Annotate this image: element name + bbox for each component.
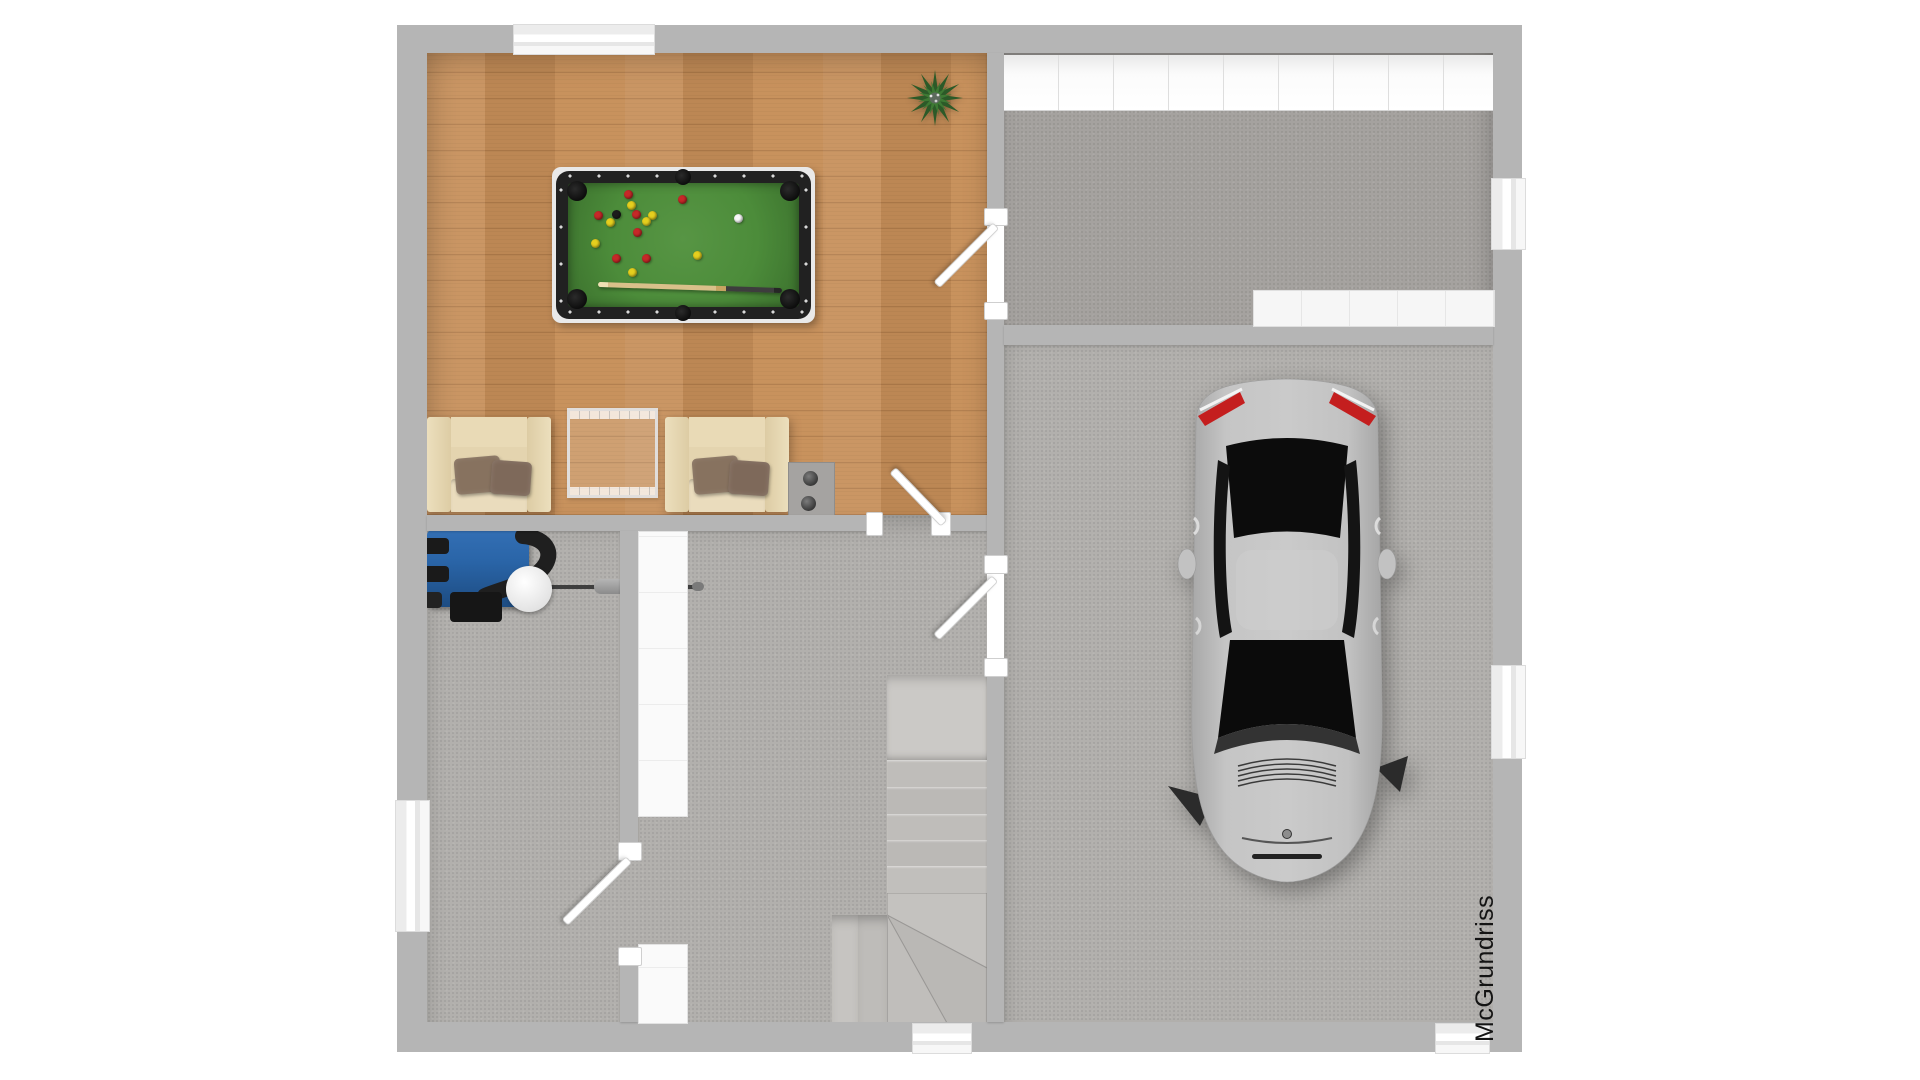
chimney-flue <box>803 471 818 486</box>
car-front-intake <box>1252 854 1322 859</box>
billiard-ball-yellow <box>606 218 615 227</box>
pool-pocket <box>567 181 587 201</box>
wall-vertical-lower <box>987 675 1004 1022</box>
billiard-ball-red <box>612 254 621 263</box>
armchair-arm <box>427 417 451 512</box>
potted-plant <box>905 68 965 128</box>
armchair-arm <box>665 417 689 512</box>
pillow <box>490 460 532 497</box>
stair-tread <box>887 787 987 815</box>
stair-tread <box>887 760 987 788</box>
window-bottom-stair <box>912 1023 972 1054</box>
car-emblem <box>1283 830 1292 839</box>
armchair-back <box>451 417 527 451</box>
car-mirror-left <box>1178 549 1196 579</box>
car-windshield <box>1218 640 1356 738</box>
billiard-ball-white <box>734 214 743 223</box>
chimney-block <box>788 462 835 518</box>
armchair-right <box>665 417 789 512</box>
pool-pocket <box>675 305 691 321</box>
glass-table-bar <box>570 411 655 419</box>
stair-tread <box>887 840 987 867</box>
workbench <box>1253 290 1495 327</box>
armchair-left <box>427 417 551 512</box>
pool-pocket <box>567 289 587 309</box>
wall-boiler-room-lower <box>620 964 638 1022</box>
floor-plan: McGrundriss <box>0 0 1920 1080</box>
door-jamb <box>984 208 1008 226</box>
wall-vertical-upper <box>987 53 1004 210</box>
wall-workshop-bottom <box>1004 325 1493 345</box>
staircase-upper-landing <box>887 675 987 760</box>
chimney-flue <box>801 496 816 511</box>
window-left-wall <box>395 800 430 932</box>
billiard-ball-yellow <box>591 239 600 248</box>
glass-table-bar <box>570 487 655 495</box>
stair-lower-step <box>858 915 888 1022</box>
billiard-ball-red <box>632 210 641 219</box>
billiard-ball-red <box>624 190 633 199</box>
stair-winders <box>887 893 987 1023</box>
window-right-upper <box>1491 178 1526 250</box>
stair-tread <box>887 866 987 894</box>
wall-closet-panel <box>638 531 688 817</box>
door-jamb <box>984 658 1008 677</box>
armchair-back <box>689 417 765 451</box>
billiard-ball-red <box>633 228 642 237</box>
pool-pocket <box>780 289 800 309</box>
stair-lower-step <box>832 915 859 1022</box>
garage-door <box>1004 55 1493 111</box>
pipe-tip <box>692 582 704 591</box>
billiard-ball-black <box>612 210 621 219</box>
car-door-wedge-right <box>1376 756 1408 792</box>
car <box>1160 368 1414 893</box>
car-rear-window <box>1226 438 1348 538</box>
door-jamb <box>866 512 883 536</box>
billiard-ball-red <box>594 211 603 220</box>
billiard-ball-yellow <box>642 217 651 226</box>
window-right-lower <box>1491 665 1526 759</box>
boiler-burner <box>450 592 502 622</box>
door-jamb <box>618 842 642 861</box>
wall-games-room-bottom <box>427 515 867 531</box>
door-jamb <box>984 555 1008 574</box>
pool-pocket <box>675 169 691 185</box>
wall-closet-panel <box>638 944 688 1024</box>
billiard-ball-yellow <box>627 201 636 210</box>
billiard-ball-red <box>678 195 687 204</box>
expansion-tank <box>506 566 552 612</box>
car-roof <box>1236 550 1338 630</box>
pool-pocket <box>780 181 800 201</box>
door-jamb <box>618 947 642 966</box>
billiard-ball-yellow <box>693 251 702 260</box>
billiard-ball-yellow <box>628 268 637 277</box>
wall-games-room-bottom-stub <box>948 515 987 531</box>
stair-tread <box>887 814 987 841</box>
wall-boiler-room-upper <box>620 531 638 843</box>
pillow <box>728 460 770 497</box>
billiard-ball-red <box>642 254 651 263</box>
window-top-wall <box>513 24 655 55</box>
wall-vertical-middle <box>987 318 1004 556</box>
glass-side-table <box>567 408 658 498</box>
car-mirror-right <box>1378 549 1396 579</box>
door-jamb <box>984 302 1008 320</box>
watermark-text: McGrundriss <box>1472 895 1498 1042</box>
